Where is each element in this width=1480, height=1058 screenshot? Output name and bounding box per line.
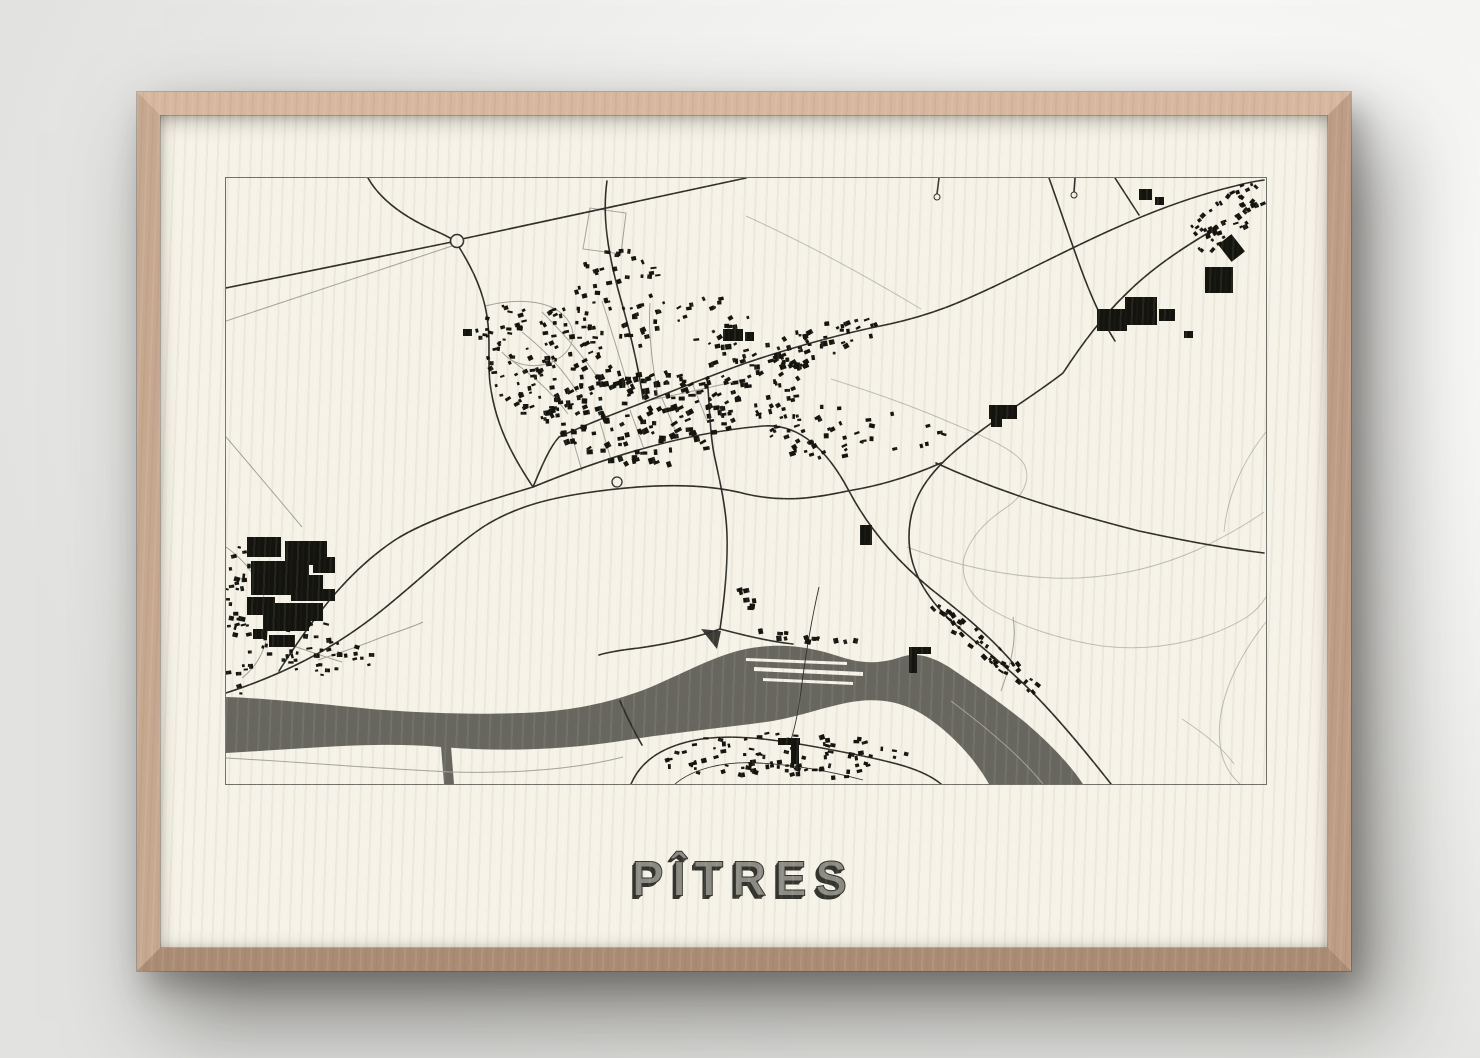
roundabout	[612, 477, 622, 487]
map-panel	[225, 177, 1267, 785]
building	[1205, 267, 1233, 293]
building	[299, 603, 323, 621]
building	[745, 332, 754, 341]
map-svg	[226, 178, 1266, 784]
wall: PÎTRES	[0, 0, 1480, 1058]
building	[319, 589, 335, 601]
roundabout	[934, 194, 940, 200]
building	[1184, 331, 1193, 338]
building	[269, 635, 295, 647]
picture-frame: PÎTRES	[137, 92, 1351, 971]
building	[313, 557, 335, 573]
building	[1139, 189, 1152, 200]
building	[247, 537, 281, 557]
building	[291, 575, 323, 601]
river-lock	[909, 647, 917, 673]
poster-title: PÎTRES	[160, 850, 1328, 907]
poster: PÎTRES	[160, 115, 1328, 948]
roundabout	[1071, 192, 1077, 198]
building	[463, 329, 472, 336]
building	[1155, 197, 1164, 205]
building	[991, 405, 1002, 427]
building	[1125, 297, 1157, 325]
building	[1097, 309, 1127, 331]
roundabout	[451, 235, 464, 248]
building	[1159, 309, 1175, 321]
building	[723, 329, 743, 341]
building	[860, 525, 872, 545]
